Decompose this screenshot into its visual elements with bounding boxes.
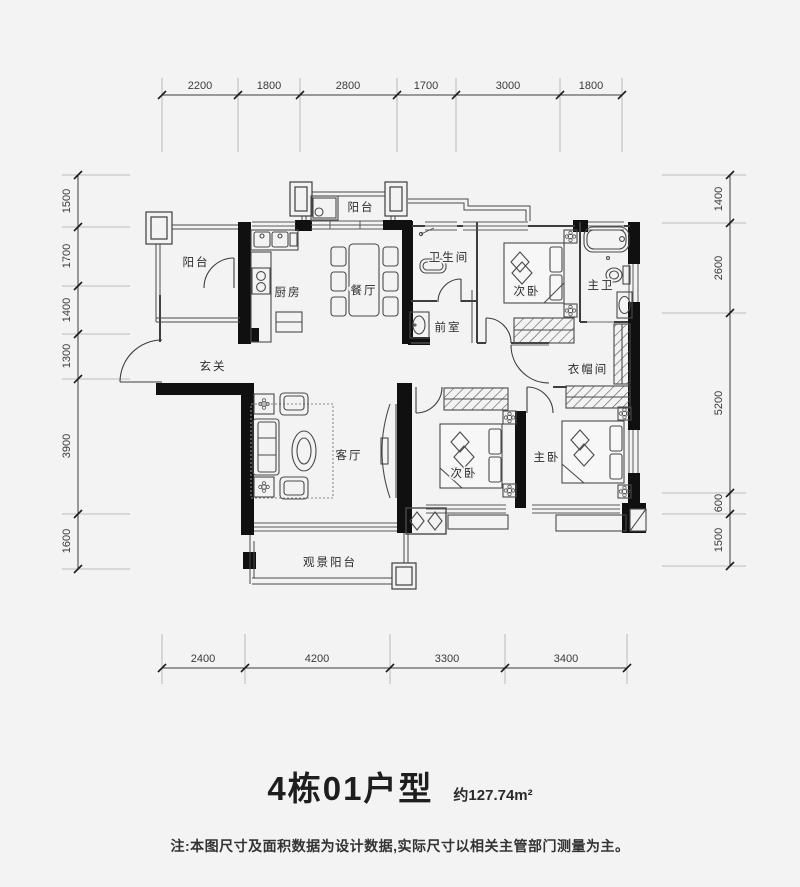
dimension-extension-lines: [62, 78, 746, 684]
dim-right-1: 1400: [713, 187, 725, 211]
bedroom2-bottom-bed: [440, 388, 516, 497]
dim-left-1: 1500: [61, 189, 73, 213]
washing-machine: [311, 196, 338, 220]
living-room-set: [251, 393, 396, 499]
bathroom-door-arc: [438, 279, 461, 302]
footnote: 注:本图尺寸及面积数据为设计数据,实际尺寸以相关主管部门测量为主。: [0, 836, 800, 856]
master-bed: [562, 407, 631, 498]
label-view-balcony: 观景阳台: [303, 555, 357, 569]
dim-left-4: 1300: [61, 344, 73, 368]
label-living: 客厅: [336, 448, 363, 462]
label-balcony-left: 阳台: [183, 255, 210, 269]
dim-bottom-3: 3300: [435, 653, 459, 665]
dim-bottom-1: 2400: [191, 653, 215, 665]
dim-top-5: 3000: [496, 80, 520, 92]
label-bedroom2-top: 次卧: [514, 284, 541, 298]
label-bathroom: 卫生间: [429, 250, 470, 264]
label-dining: 餐厅: [351, 283, 378, 297]
dim-bottom-4: 3400: [554, 653, 578, 665]
window-sill: [556, 515, 626, 531]
tv-wall: [382, 404, 390, 498]
dim-bottom-2: 4200: [305, 653, 329, 665]
dim-left-3: 1400: [61, 298, 73, 322]
floor-plan-drawing: 2200 1800 2800 1700 3000 1800 1500 1700 …: [0, 0, 800, 887]
bedroom2-bottom-door-arc: [416, 387, 442, 413]
dim-right-5: 1500: [713, 528, 725, 552]
entry-door-arc: [120, 340, 162, 382]
title-block: 4栋01户型 约127.74m²: [0, 762, 800, 810]
label-cloakroom: 衣帽间: [568, 362, 609, 376]
dim-left-6: 1600: [61, 529, 73, 553]
master-bedroom-door-arc: [527, 387, 553, 413]
label-master-bedroom: 主卧: [534, 451, 561, 464]
dim-top-2: 1800: [257, 80, 281, 92]
dim-top-6: 1800: [579, 80, 603, 92]
label-kitchen: 厨房: [275, 286, 302, 299]
unit-area: 约127.74m²: [453, 784, 532, 805]
label-entry: 玄关: [200, 359, 227, 373]
dim-right-3: 5200: [713, 391, 725, 415]
dim-top-1: 2200: [188, 80, 212, 92]
bedroom2-top-door-arc: [486, 318, 511, 343]
coffee-table: [292, 431, 316, 471]
label-bedroom2-bottom: 次卧: [451, 466, 478, 480]
dining-table: [331, 244, 398, 316]
sofa: [253, 419, 279, 475]
label-vestibule: 前室: [435, 320, 462, 334]
label-balcony-top: 阳台: [348, 200, 375, 214]
dim-left-2: 1700: [61, 244, 73, 268]
dim-right-4: 600: [713, 494, 725, 512]
dim-top-3: 2800: [336, 80, 360, 92]
dim-left-5: 3900: [61, 434, 73, 458]
dim-right-2: 2600: [713, 256, 725, 280]
kitchen-counter: [251, 230, 302, 342]
cloakroom-door-arc: [511, 345, 549, 383]
window-sill: [448, 515, 508, 529]
label-master-bath: 主卫: [588, 279, 615, 292]
unit-title: 4栋01户型: [267, 762, 433, 810]
dim-top-4: 1700: [414, 80, 438, 92]
master-bath-fixtures: [584, 227, 632, 318]
floor-plan-page: 2200 1800 2800 1700 3000 1800 1500 1700 …: [0, 0, 800, 887]
